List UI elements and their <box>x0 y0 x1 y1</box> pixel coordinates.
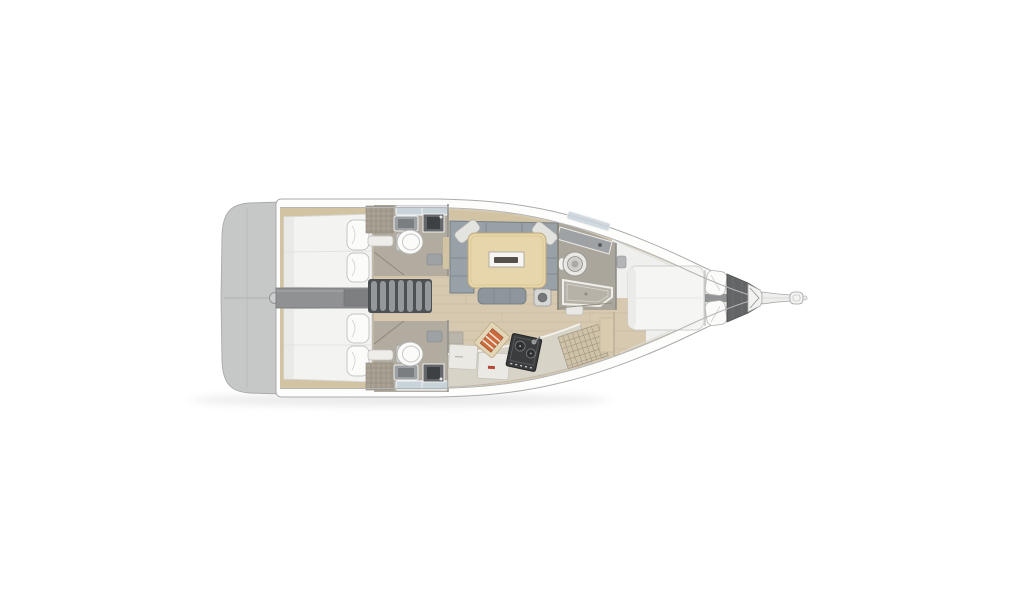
mast-post <box>538 293 547 302</box>
sprit-tip <box>803 296 807 300</box>
bowsprit-cap <box>790 292 803 304</box>
vanity-basin <box>398 219 414 228</box>
shower-drain <box>585 293 588 296</box>
aft-cabin-starboard: Starboard aft double cabin <box>284 307 373 382</box>
boat-floorplan-canvas: Stern swim platform <box>0 0 1024 600</box>
aft-cabin-port: Port aft double cabin <box>284 214 373 289</box>
counter-knob <box>598 243 602 247</box>
deck-hatch-grid <box>366 363 393 390</box>
locker-small <box>427 254 442 265</box>
corridor-locker <box>600 318 614 352</box>
tray-item <box>494 257 518 263</box>
locker-small <box>427 331 442 342</box>
bow-section: Bowsprit <box>727 274 807 322</box>
berth-foot-shading <box>284 309 294 379</box>
engine-box <box>276 288 372 308</box>
swim-platform: Stern swim platform <box>221 202 281 394</box>
door-hinge <box>617 256 626 268</box>
shelf-tray <box>368 236 393 246</box>
saloon-stool <box>478 288 526 304</box>
galley-cabinet <box>448 344 477 369</box>
forward-head: Forward head with round basin and shower <box>557 211 626 315</box>
engine-hatch <box>344 290 372 306</box>
basin-drain <box>572 261 579 268</box>
pillow <box>347 253 369 282</box>
pillow <box>347 314 369 343</box>
sink-basin <box>427 367 440 379</box>
companionway-stairs: Companionway steps <box>368 279 432 313</box>
deck-hatch-grid <box>366 206 393 233</box>
aft-head-starboard: Starboard aft head with toilet and sink <box>366 320 448 392</box>
galley-locker <box>449 332 463 344</box>
saloon: Saloon with U-shaped sofa and table <box>443 218 559 306</box>
faucet <box>440 378 443 381</box>
stair-treads <box>371 280 431 312</box>
boat-floorplan: Stern swim platform <box>0 0 1024 600</box>
faucet <box>440 216 443 219</box>
saloon-locker <box>443 237 450 269</box>
sink-basin <box>427 217 440 229</box>
cabinet-label <box>488 366 495 369</box>
shelf-tray <box>368 350 393 360</box>
vanity-basin <box>398 368 414 377</box>
aft-head-port: Port aft head with toilet and sink <box>366 204 448 276</box>
